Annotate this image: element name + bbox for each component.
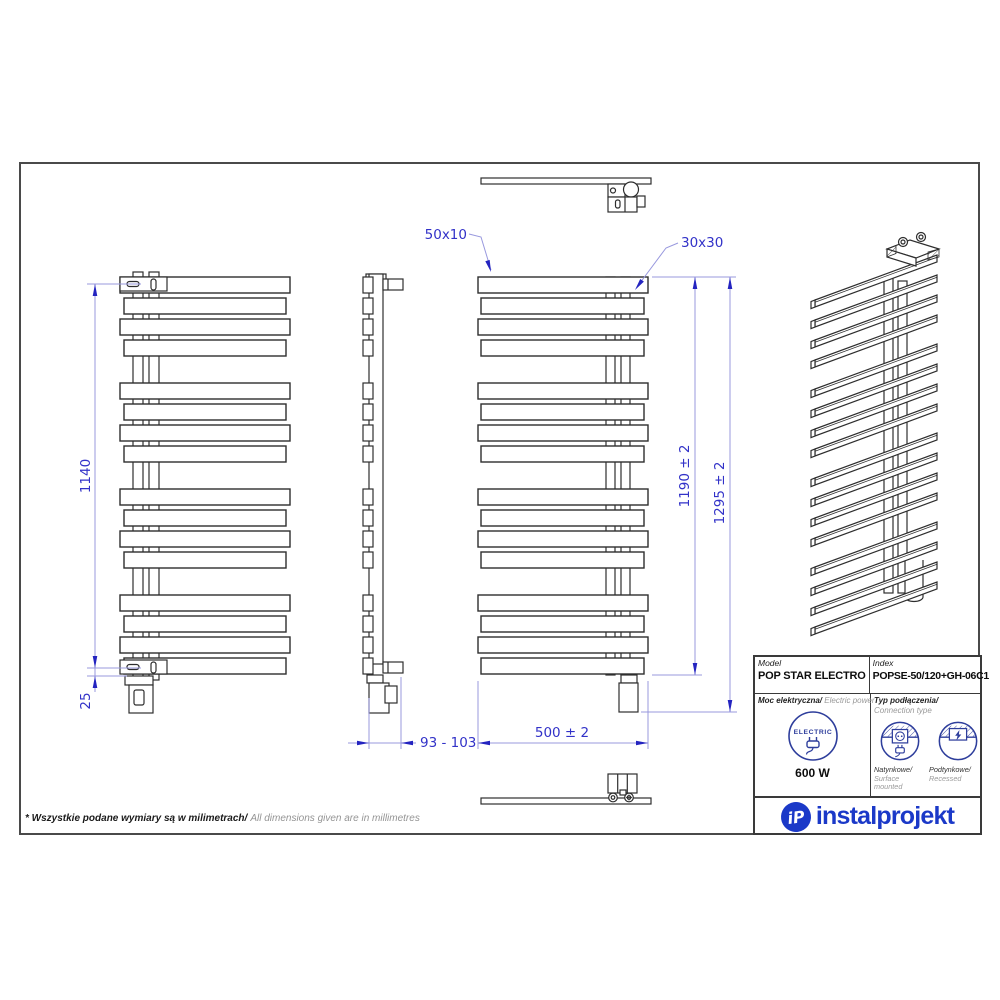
view-front-left <box>120 272 290 713</box>
surface-mounted-icon <box>878 719 922 763</box>
svg-text:ELECTRIC: ELECTRIC <box>793 729 832 736</box>
index-label: Index <box>873 659 989 668</box>
title-block: Model POP STAR ELECTRO Index POPSE-50/12… <box>753 655 982 835</box>
electric-power-cell: Moc elektryczna/ Electric power ELECTRIC… <box>755 694 871 796</box>
footer-note-pl: * Wszystkie podane wymiary są w milimetr… <box>25 813 247 824</box>
dim-body-height: 1190 ± 2 <box>677 445 693 508</box>
power-value: 600 W <box>795 766 830 780</box>
footer-note: * Wszystkie podane wymiary są w milimetr… <box>25 813 420 824</box>
model-cell: Model POP STAR ELECTRO <box>755 657 870 693</box>
view-front-main <box>478 277 648 712</box>
view-side <box>363 274 403 713</box>
dim-bottom-margin: 25 <box>78 692 94 709</box>
model-value: POP STAR ELECTRO <box>758 670 866 682</box>
connection-icons <box>874 719 984 763</box>
electric-icon: ELECTRIC <box>785 708 841 764</box>
dim-collector-profile: 30x30 <box>681 235 723 251</box>
dim-bar-profile: 50x10 <box>425 227 467 243</box>
dim-axis-spacing: 1140 <box>78 459 94 493</box>
dim-total-height: 1295 ± 2 <box>712 462 728 525</box>
recessed-label: Podtynkowe/ Recessed <box>929 766 984 792</box>
connection-header: Typ podłączenia/Connection type <box>874 696 984 715</box>
index-value: POPSE-50/120+GH-06C1 <box>873 670 989 682</box>
surface-mounted-label: Natynkowe/ Surface mounted <box>874 766 929 792</box>
connection-labels: Natynkowe/ Surface mounted Podtynkowe/ R… <box>874 766 984 792</box>
view-top <box>481 178 651 212</box>
title-block-header-row: Model POP STAR ELECTRO Index POPSE-50/12… <box>755 657 980 694</box>
footer-note-en: All dimensions given are in millimetres <box>250 813 420 824</box>
title-block-detail-row: Moc elektryczna/ Electric power ELECTRIC… <box>755 694 980 796</box>
dim-width: 500 ± 2 <box>535 725 589 741</box>
brand-row: iP instalprojekt <box>755 796 980 835</box>
recessed-icon <box>936 719 980 763</box>
connection-type-cell: Typ podłączenia/Connection type <box>871 694 987 796</box>
dim-wall-distance: 93 - 103 <box>420 735 476 751</box>
model-label: Model <box>758 659 866 668</box>
index-cell: Index POPSE-50/120+GH-06C1 <box>870 657 992 693</box>
technical-drawing: 1140 25 93 - 103 50x10 30x30 1190 ± 2 12… <box>0 0 1000 1000</box>
view-bottom <box>481 774 651 804</box>
logo-text: instalprojekt <box>816 802 954 831</box>
power-header: Moc elektryczna/ Electric power <box>758 696 875 706</box>
logo-icon: iP <box>779 800 813 834</box>
view-isometric <box>811 233 939 636</box>
